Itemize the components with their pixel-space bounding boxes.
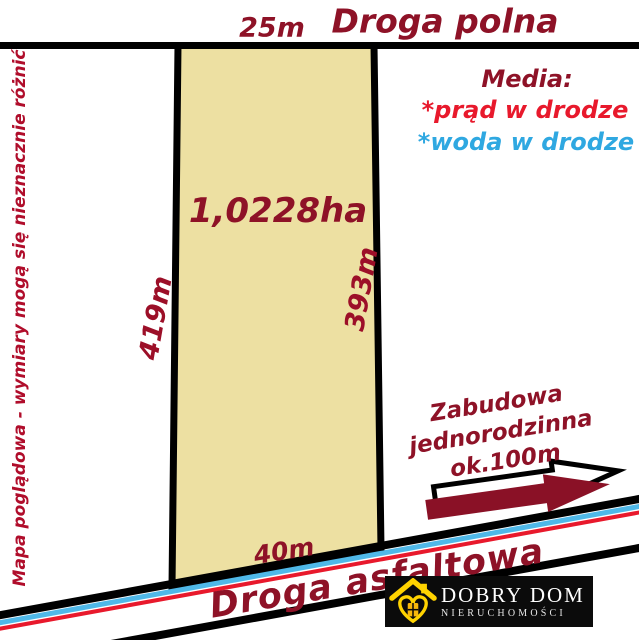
top-width-label: 25m xyxy=(239,13,305,44)
house-roof xyxy=(392,580,434,597)
media-water-item: *woda w drodze xyxy=(418,128,634,156)
house-heart-icon xyxy=(389,578,437,626)
media-heading: Media: xyxy=(481,65,572,93)
media-electricity-item: *prąd w drodze xyxy=(422,96,629,124)
logo-name: DOBRY DOM xyxy=(441,584,585,606)
map-disclaimer-vertical: Mapa poglądowa - wymiary mogą się niezna… xyxy=(10,50,30,587)
logo-text-block: DOBRY DOM NIERUCHOMOŚCI xyxy=(441,584,585,620)
land-plot-flyer: 25m Droga polna Media: *prąd w drodze *w… xyxy=(0,0,639,640)
agency-logo: DOBRY DOM NIERUCHOMOŚCI xyxy=(385,576,593,627)
logo-subtitle: NIERUCHOMOŚCI xyxy=(441,608,585,620)
parcel-area-label: 1,0228ha xyxy=(189,191,367,231)
dirt-road-name-label: Droga polna xyxy=(331,2,558,41)
